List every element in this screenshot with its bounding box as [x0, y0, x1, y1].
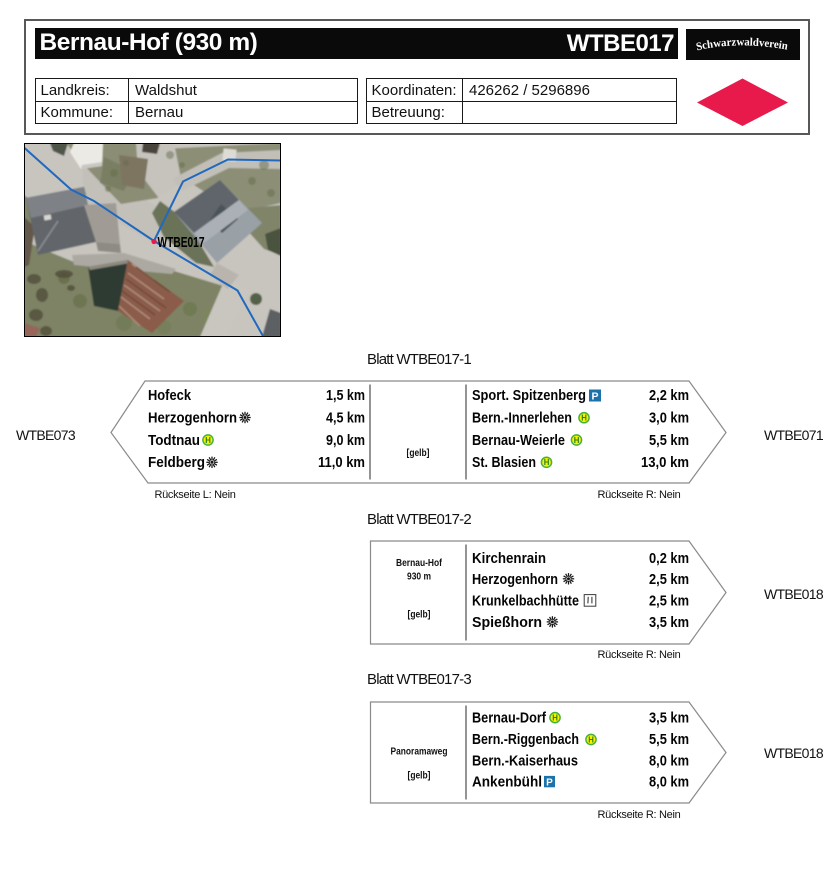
svg-text:13,0 km: 13,0 km [641, 455, 689, 471]
svg-text:4,5 km: 4,5 km [326, 411, 365, 427]
svg-text:[gelb]: [gelb] [407, 448, 430, 459]
svg-text:[gelb]: [gelb] [408, 610, 431, 621]
svg-text:1,5 km: 1,5 km [326, 388, 365, 404]
svg-text:H: H [205, 436, 211, 445]
svg-text:Bernau-Hof: Bernau-Hof [396, 558, 443, 569]
svg-text:9,0 km: 9,0 km [326, 433, 365, 449]
svg-text:Feldberg: Feldberg [148, 455, 205, 471]
svg-text:H: H [581, 414, 587, 423]
svg-text:930 m: 930 m [407, 572, 431, 583]
svg-text:3,5 km: 3,5 km [649, 711, 689, 727]
svg-text:8,0 km: 8,0 km [649, 754, 689, 770]
svg-text:Panoramaweg: Panoramaweg [391, 747, 448, 758]
svg-text:H: H [552, 713, 558, 722]
svg-text:Ankenbühl: Ankenbühl [472, 775, 542, 791]
svg-text:H: H [574, 436, 580, 445]
svg-text:3,0 km: 3,0 km [649, 411, 689, 427]
svg-text:Bern.-Riggenbach: Bern.-Riggenbach [472, 732, 579, 748]
svg-text:11,0 km: 11,0 km [318, 455, 365, 471]
svg-text:Bern.-Kaiserhaus: Bern.-Kaiserhaus [472, 754, 578, 770]
svg-text:Sport. Spitzenberg: Sport. Spitzenberg [472, 388, 586, 404]
svg-text:P: P [591, 391, 598, 403]
svg-text:Hofeck: Hofeck [148, 388, 192, 404]
svg-text:Todtnau: Todtnau [148, 433, 200, 449]
svg-text:Schwarzwaldverein: Schwarzwaldverein [695, 36, 789, 53]
svg-text:0,2 km: 0,2 km [649, 551, 689, 567]
svg-text:P: P [546, 777, 553, 788]
svg-text:St. Blasien: St. Blasien [472, 455, 536, 471]
svg-text:Spießhorn: Spießhorn [472, 615, 542, 631]
svg-text:2,2 km: 2,2 km [649, 388, 689, 404]
svg-text:[gelb]: [gelb] [408, 771, 431, 782]
svg-text:2,5 km: 2,5 km [649, 594, 689, 610]
svg-text:5,5 km: 5,5 km [649, 732, 689, 748]
svg-text:2,5 km: 2,5 km [649, 572, 689, 588]
svg-text:5,5 km: 5,5 km [649, 433, 689, 449]
svg-text:Bernau-Dorf: Bernau-Dorf [472, 711, 546, 727]
svg-text:Bernau-Weierle: Bernau-Weierle [472, 433, 565, 449]
svg-text:Kirchenrain: Kirchenrain [472, 551, 546, 567]
svg-text:Herzogenhorn: Herzogenhorn [472, 572, 558, 588]
svg-text:8,0 km: 8,0 km [649, 775, 689, 791]
svg-text:WTBE017: WTBE017 [158, 235, 205, 251]
svg-text:Krunkelbachhütte: Krunkelbachhütte [472, 594, 579, 610]
svg-text:H: H [588, 735, 594, 744]
svg-text:Bern.-Innerlehen: Bern.-Innerlehen [472, 411, 572, 427]
svg-text:H: H [544, 458, 550, 467]
svg-text:Herzogenhorn: Herzogenhorn [148, 411, 237, 427]
svg-text:3,5 km: 3,5 km [649, 615, 689, 631]
